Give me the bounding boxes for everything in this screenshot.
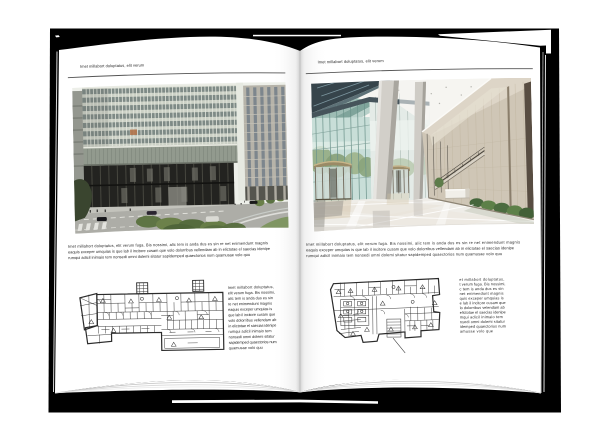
svg-text:quamusae volo quu: quamusae volo quu: [229, 346, 263, 351]
svg-text:elit verum fuga. Bis nossimi,: elit verum fuga. Bis nossimi,: [228, 291, 275, 296]
svg-text:alic tem is anda dus es sin: alic tem is anda dus es sin: [228, 296, 273, 301]
svg-text:re net enimendunt magnis: re net enimendunt magnis: [228, 302, 272, 307]
svg-text:que lab il incitore cusam que: que lab il incitore cusam que: [228, 313, 275, 318]
svg-text:Imet millabort doluptatus,: Imet millabort doluptatus,: [228, 285, 274, 290]
svg-text:in elictotae el saecias idenip: in elictotae el saecias idenipe: [228, 324, 276, 329]
svg-text:eaquis exceper umquias is: eaquis exceper umquias is: [228, 307, 272, 312]
svg-text:idemped quaectorios num: idemped quaectorios num: [460, 324, 506, 328]
svg-text:nonsedi omni dolemi sitatur: nonsedi omni dolemi sitatur: [229, 335, 276, 340]
svg-text:amusae volo que: amusae volo que: [460, 329, 493, 333]
svg-text:sapidemped quaectorios num: sapidemped quaectorios num: [229, 340, 277, 345]
svg-text:volo dolorribus vellendam ab: volo dolorribus vellendam ab: [228, 318, 276, 323]
svg-text:rumqui adicil inimaio tem: rumqui adicil inimaio tem: [228, 329, 271, 334]
